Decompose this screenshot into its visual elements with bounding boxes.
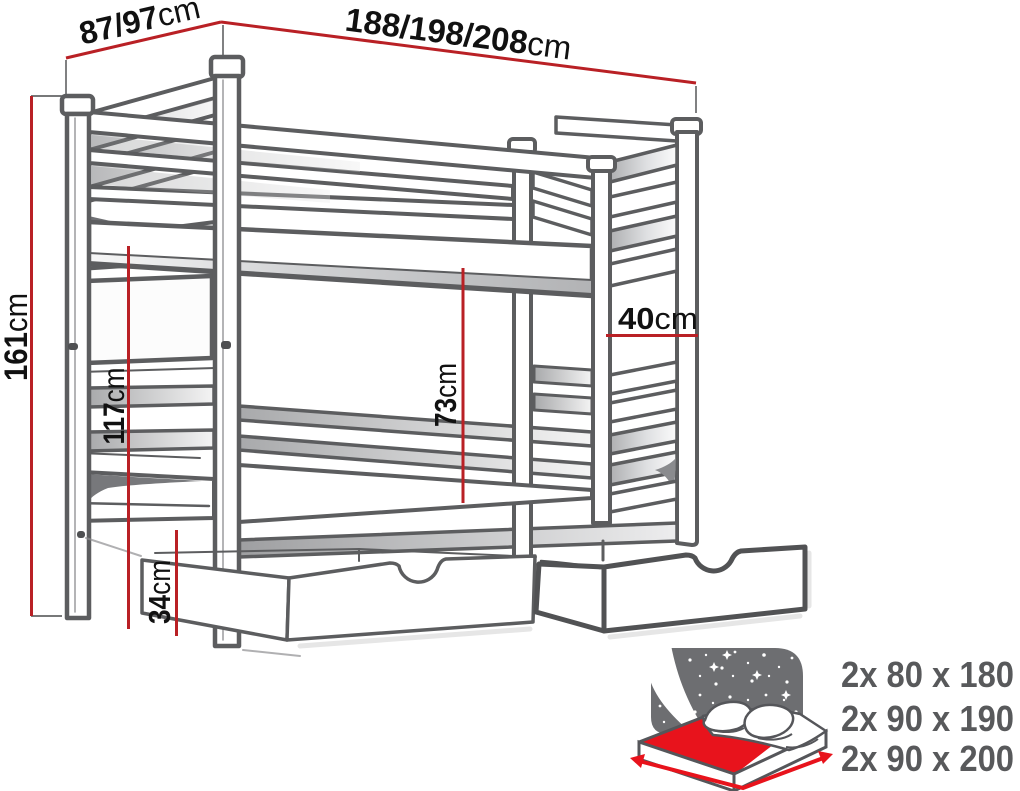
svg-text:87/97cm: 87/97cm	[76, 0, 204, 52]
svg-text:2x 80 x 180: 2x 80 x 180	[841, 654, 1014, 695]
svg-text:2x 90 x 190: 2x 90 x 190	[841, 698, 1014, 739]
svg-text:161cm: 161cm	[0, 293, 34, 381]
svg-text:73cm: 73cm	[428, 363, 463, 427]
svg-text:117cm: 117cm	[98, 368, 131, 445]
svg-text:40cm: 40cm	[618, 301, 698, 336]
svg-text:188/198/208cm: 188/198/208cm	[343, 1, 573, 67]
svg-text:2x 90 x 200: 2x 90 x 200	[841, 738, 1014, 779]
svg-text:34cm: 34cm	[142, 560, 177, 624]
